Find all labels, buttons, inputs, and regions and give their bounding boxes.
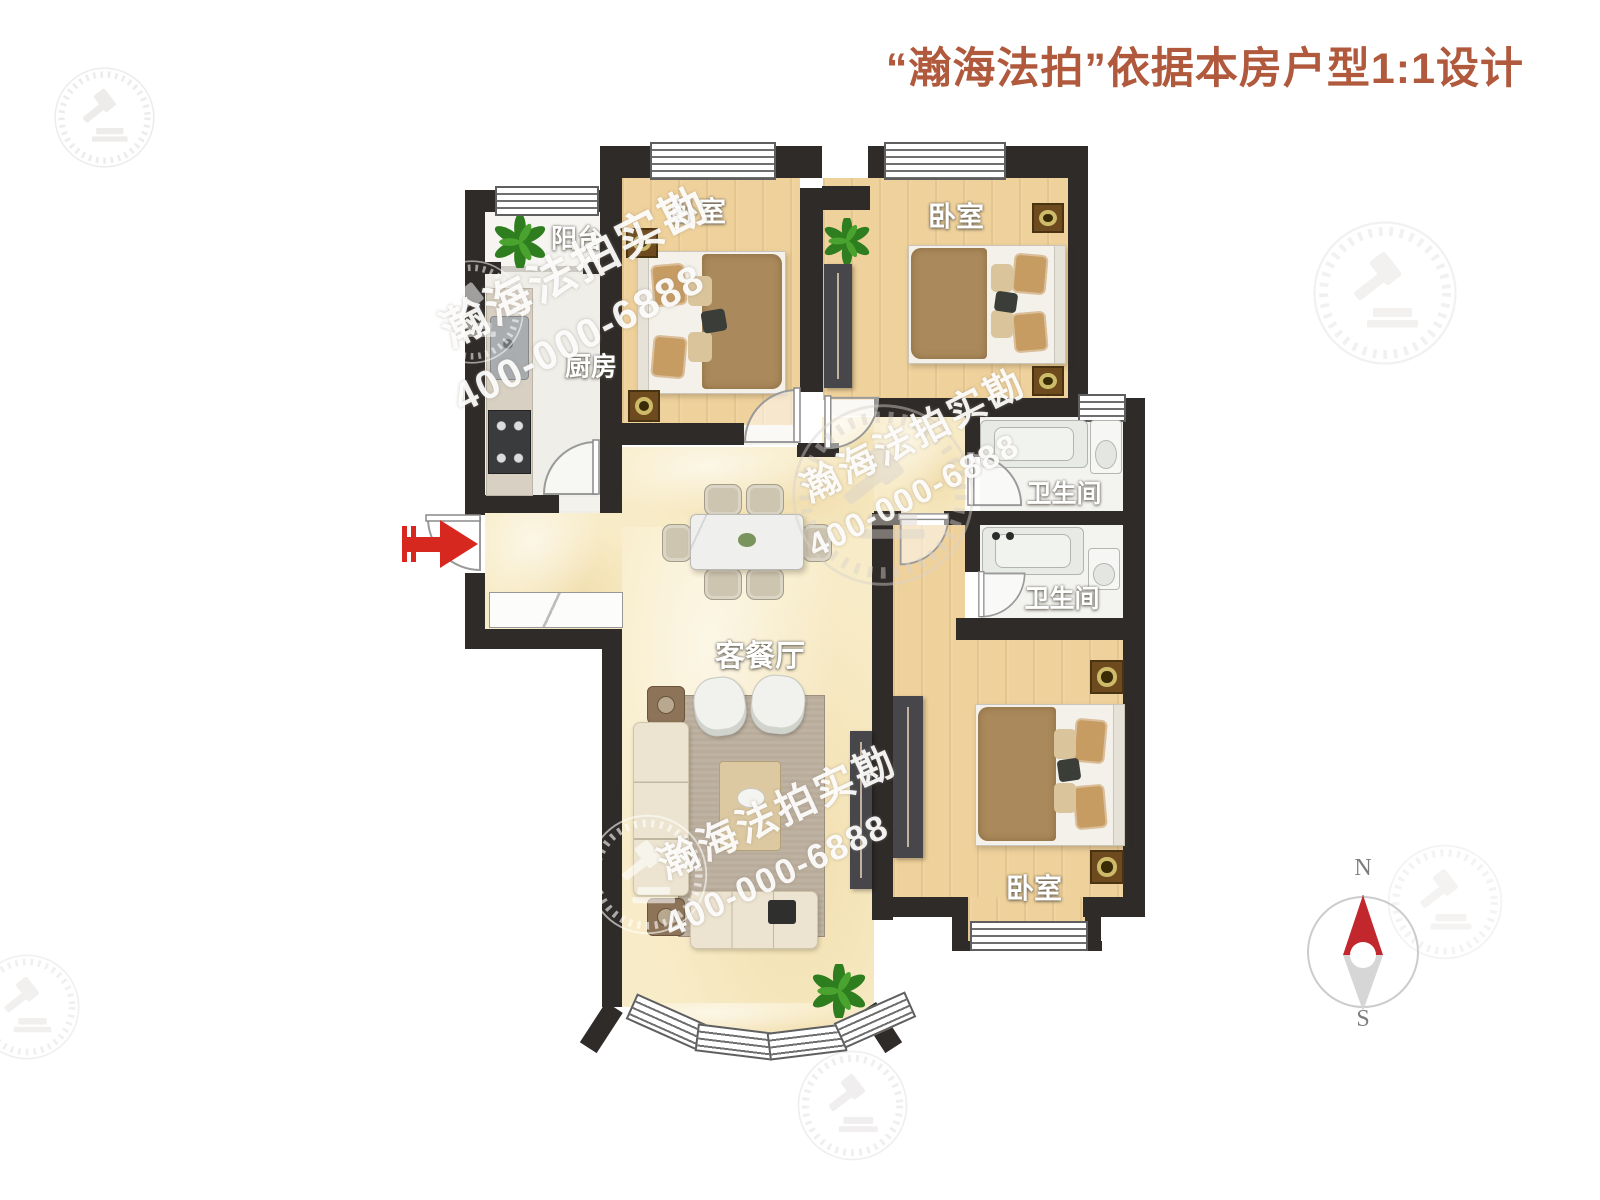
pillow (1011, 253, 1048, 296)
bed-blanket (911, 248, 987, 359)
wardrobe (824, 264, 852, 388)
entry-arrow-icon (440, 520, 478, 568)
plant-icon (824, 218, 870, 264)
wall-segment (465, 629, 622, 649)
room-label-bedroom3: 卧室 (1006, 867, 1062, 907)
nightstand (1090, 850, 1124, 884)
nightstand (1032, 203, 1064, 233)
bedroom3-bay-window (970, 921, 1088, 951)
compass: N S (1298, 855, 1428, 1033)
dining-chair (746, 568, 784, 600)
brand-logo-watermark-icon (1310, 218, 1460, 368)
wall-segment (965, 511, 1125, 525)
wall-segment (822, 186, 870, 210)
wall-segment (1123, 398, 1145, 917)
wall-segment (956, 618, 1125, 640)
wall-segment (800, 188, 823, 392)
dining-table (690, 514, 804, 570)
room-label-living: 客餐厅 (715, 631, 805, 675)
nightstand (628, 390, 660, 422)
brand-logo-watermark-icon (795, 1048, 910, 1163)
toilet-upper (1090, 420, 1122, 474)
pillow (991, 310, 1013, 338)
pillow (1072, 784, 1108, 831)
bed-blanket (978, 707, 1056, 841)
room-label-bathroom1: 卫生间 (1026, 474, 1101, 510)
dining-chair (704, 568, 742, 600)
bed-headboard (1113, 705, 1124, 845)
compass-south-label: S (1356, 1006, 1369, 1033)
nightstand (1090, 660, 1124, 694)
bed-bedroom2 (908, 245, 1066, 364)
pillow (1072, 718, 1108, 765)
plant-icon (812, 964, 866, 1018)
room-label-bathroom2: 卫生间 (1024, 579, 1099, 615)
bay-wall-left (580, 1002, 623, 1053)
dining-chair (746, 484, 784, 516)
wall-segment (1068, 146, 1088, 417)
bedroom1-window (650, 142, 776, 180)
floor-plan-page: 阳台 厨房 卧室 卧室 卫生间 卫生间 客餐厅 卧室 瀚海法拍实勘 400-00… (0, 0, 1600, 1200)
room-label-bedroom2: 卧室 (928, 195, 984, 235)
faucet-dot (992, 532, 1000, 540)
shoe-cabinet (489, 592, 623, 628)
pillow (688, 332, 712, 362)
bathroom1-window (1078, 394, 1126, 422)
page-title: “瀚海法拍”依据本房户型1:1设计 (886, 34, 1524, 96)
side-table (647, 686, 685, 724)
pillow (1054, 729, 1076, 759)
bedroom2-window (884, 142, 1006, 180)
bed-headboard (1054, 246, 1065, 363)
brand-logo-watermark-icon (52, 65, 157, 170)
entry-arrow-icon (402, 537, 444, 552)
door-bathroom2 (978, 570, 1028, 620)
door-kitchen (540, 438, 600, 498)
wall-segment (872, 897, 964, 917)
nightstand (1032, 366, 1064, 396)
bed-bedroom3 (975, 704, 1125, 846)
dining-chair (662, 524, 692, 562)
pillow (1011, 311, 1048, 354)
brand-logo-watermark-icon (0, 952, 82, 1062)
wall-segment (618, 423, 744, 445)
bed-throw (700, 308, 727, 334)
compass-north-label: N (1354, 855, 1371, 882)
sofa-cushion-dark (768, 900, 796, 924)
bed-throw (994, 291, 1019, 314)
dining-chair (704, 484, 742, 516)
bed-throw (1057, 758, 1082, 783)
kitchen-stove (488, 410, 531, 474)
pillow (1054, 783, 1076, 813)
faucet-dot (1006, 532, 1014, 540)
pillow (991, 264, 1013, 292)
balcony-window (495, 186, 599, 216)
pillow (650, 335, 688, 380)
kitchen-threshold (560, 497, 600, 511)
wall-stub (952, 897, 968, 941)
